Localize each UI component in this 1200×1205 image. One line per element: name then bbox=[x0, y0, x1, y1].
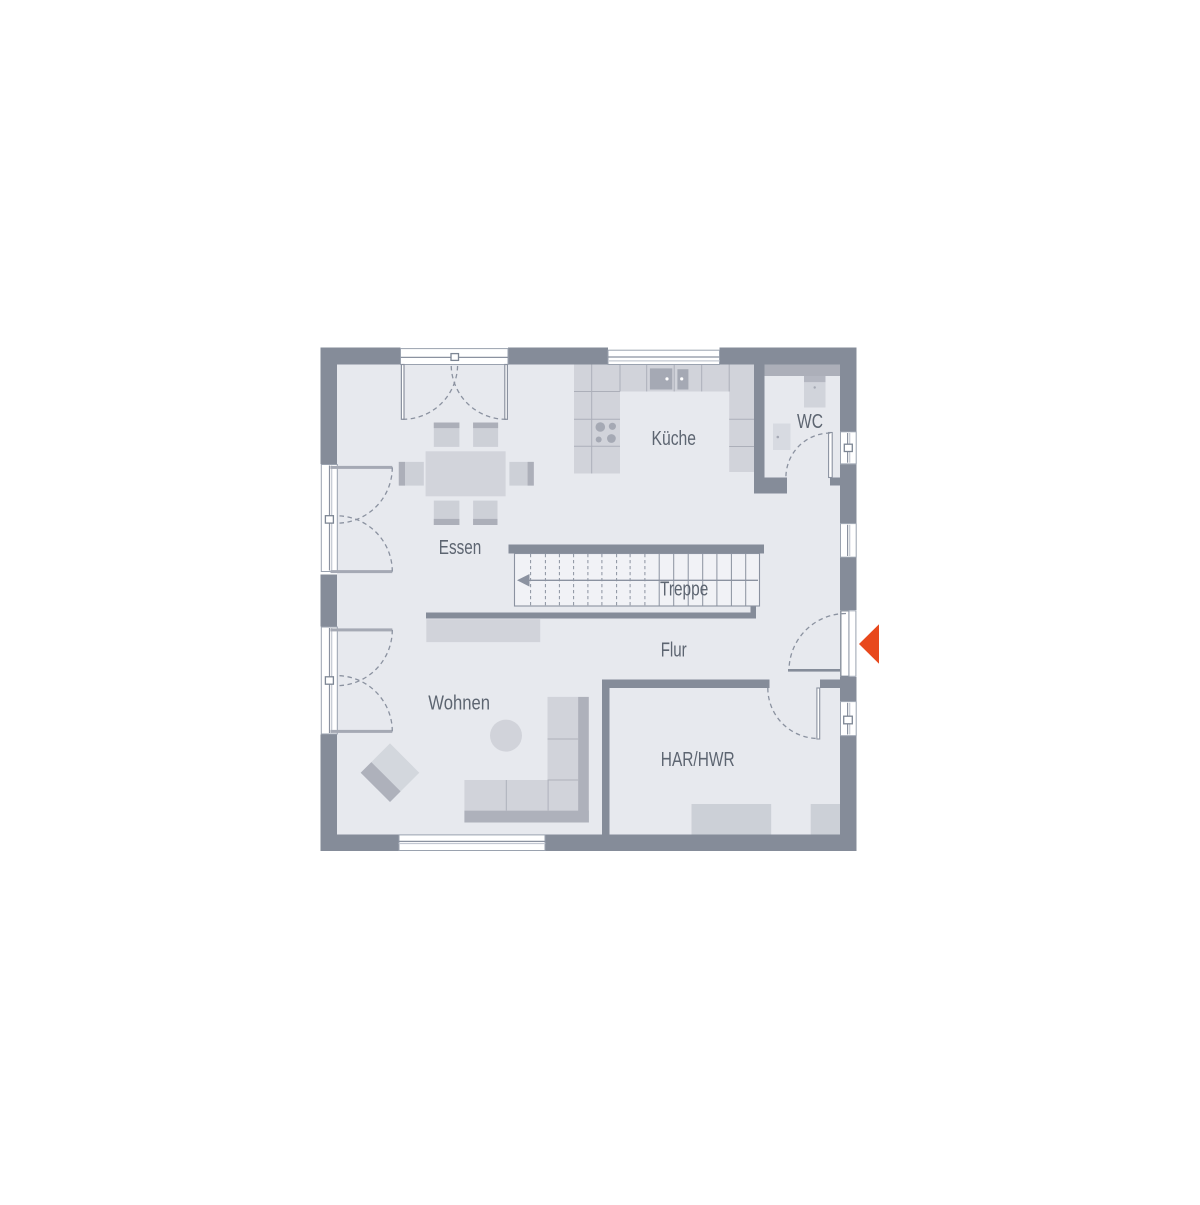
svg-text:HAR/HWR: HAR/HWR bbox=[661, 749, 735, 771]
svg-text:Flur: Flur bbox=[661, 640, 687, 662]
svg-text:Treppe: Treppe bbox=[660, 579, 708, 601]
svg-text:WC: WC bbox=[797, 411, 823, 433]
svg-text:Wohnen: Wohnen bbox=[428, 693, 490, 715]
svg-text:Essen: Essen bbox=[439, 537, 482, 559]
svg-text:Küche: Küche bbox=[652, 428, 697, 450]
